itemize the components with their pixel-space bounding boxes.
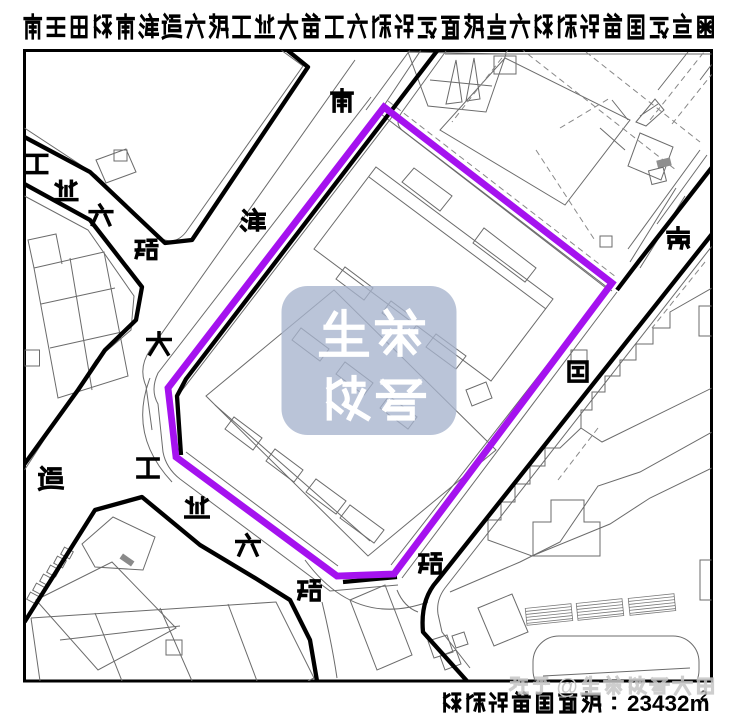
svg-text:23432m: 23432m	[627, 691, 710, 716]
svg-text:@: @	[556, 674, 578, 699]
